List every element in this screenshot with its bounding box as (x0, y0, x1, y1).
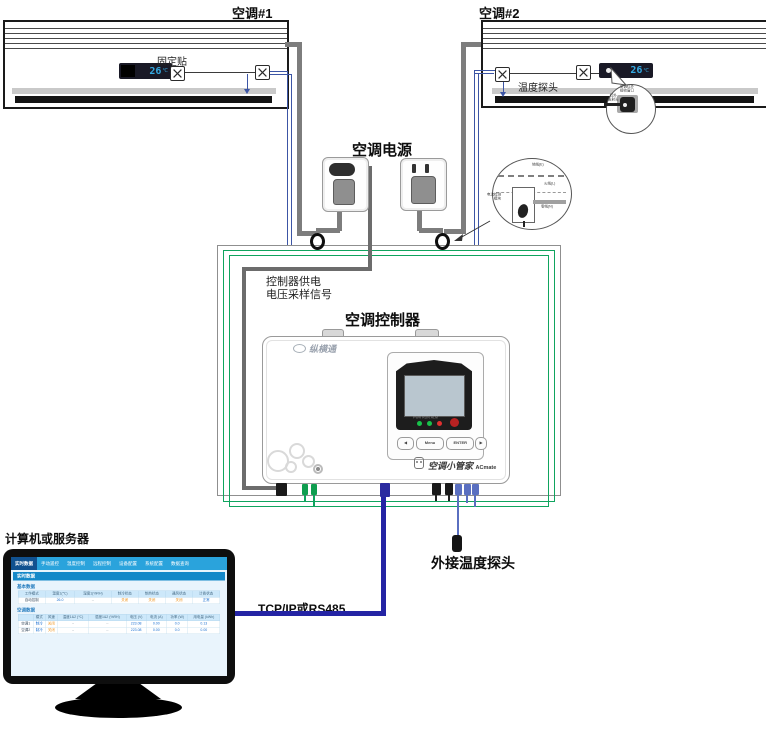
neutral-wire-label: 零线(N) (541, 205, 553, 209)
basic-data-title: 基本数据 (17, 583, 227, 590)
vent-line (483, 28, 766, 29)
monitor-tab[interactable]: 实时数据 (11, 557, 37, 570)
ext-probe-label: 外接温度探头 (431, 553, 515, 573)
ext-probe-wire (457, 495, 459, 535)
pin-comm-blue (380, 483, 390, 497)
vent-line (483, 48, 766, 49)
plug-right-cable (419, 228, 443, 233)
table-cell: -- (75, 597, 112, 604)
ac1-louver-dark (15, 96, 272, 103)
monitor-tab[interactable]: 数据查询 (167, 557, 193, 570)
cable-clip-icon (576, 65, 591, 80)
supply-label-line1: 控制器供电 (266, 276, 321, 288)
table-cell: 关闭 (111, 597, 138, 604)
vent-line (483, 43, 766, 44)
cable-clip-icon (255, 65, 270, 80)
table-cell: 关闭 (45, 627, 57, 634)
led-alarm (437, 421, 442, 426)
ct-ring-right (435, 233, 450, 250)
led-label-pwr: PWR (413, 416, 421, 420)
product-name-en: ACmate (476, 465, 497, 471)
controller-supply-cable (242, 267, 372, 271)
ir-callout-side-label-1: 红外 (610, 94, 617, 98)
led-run (427, 421, 432, 426)
table-cell: 关闭 (138, 597, 165, 604)
table-cell: 制冷 (33, 627, 45, 634)
pin-sensor-blue (472, 484, 479, 495)
menu-button[interactable]: Menu (416, 437, 444, 450)
table-cell: 26.0 (45, 597, 74, 604)
ac-data-table: 模式风速温度1&2 (℃)湿度1&2 (%RH)电压 (V)电流 (A)功率 (… (18, 614, 220, 634)
basic-data-table: 工作模式温度1(℃)湿度1(%RH)制冷状态制热状态通风状态计费状态自动控制26… (18, 591, 220, 605)
diagram-canvas: 空调#1 26 ℃ 固定贴 空调#2 温度探头 26 ℃ (0, 0, 766, 731)
down-arrow-icon (500, 92, 506, 97)
cable-clip-icon (495, 67, 510, 82)
table-cell: 正常 (193, 597, 220, 604)
pin-stub (448, 495, 450, 501)
speaker-dot (316, 467, 320, 471)
monitor-tab[interactable]: 手动遥控 (37, 557, 63, 570)
monitor-screen: 实时数据手动遥控温度控制远程控制设备配置系统配置数据查询 实时数据 基本数据 工… (11, 557, 227, 676)
socket-slot (412, 164, 416, 173)
ct-ring-left (310, 233, 325, 250)
current-module-label-2: 模块 (494, 197, 501, 201)
ir-receiver-dot (450, 418, 459, 427)
vent-line (5, 48, 287, 49)
brand-name: 纵横通 (309, 342, 336, 355)
enter-button[interactable]: ENTER (446, 437, 474, 450)
table-cell: 空调2 (18, 627, 33, 634)
ground-wire (498, 175, 564, 177)
vent-line (5, 33, 287, 34)
monitor-tab[interactable]: 温度控制 (63, 557, 89, 570)
ac1-louver-light (12, 88, 276, 94)
pin-sensor-blue (464, 484, 471, 495)
vent-line (5, 28, 287, 29)
pin-stub (466, 495, 468, 503)
ir-emitter-lens (623, 103, 627, 107)
probe-drop-wire (247, 74, 248, 89)
monitor-tabs: 实时数据手动遥控温度控制远程控制设备配置系统配置数据查询 (11, 557, 227, 570)
table-row: 空调2制冷关闭----223.080.000.00.00 (18, 627, 220, 634)
speaker-hole (285, 461, 297, 473)
right-arrow-button[interactable]: ▶ (475, 437, 487, 450)
pin-stub (474, 495, 476, 507)
plug-right (411, 176, 436, 204)
live-wire-label: 火线(L) (544, 182, 555, 186)
pin-stub (304, 495, 306, 502)
pin-stub (313, 495, 315, 506)
controller-title: 空调控制器 (345, 309, 420, 330)
socket-slot (425, 164, 429, 173)
neutral-wire (533, 200, 566, 204)
current-module-label-1: 电流检测 (487, 193, 501, 197)
ac2-temp-value: 26 (630, 65, 642, 76)
pin-ct-green (302, 484, 308, 495)
pin-black (445, 483, 453, 495)
table-cell: -- (89, 627, 126, 634)
acmate-mascot-icon (414, 457, 424, 469)
pin-power-black (276, 483, 287, 496)
tcpip-cable (228, 611, 386, 616)
ir-signal-wire (474, 73, 494, 74)
ct-wire-stub (523, 221, 525, 227)
computer-title: 计算机或服务器 (5, 530, 89, 547)
left-arrow-button[interactable]: ◀ (397, 437, 414, 450)
table-cell: 0.00 (146, 627, 166, 634)
ir-signal-wire (268, 74, 292, 75)
ac-data-title: 空调数据 (17, 607, 227, 614)
ac1-temp-unit: ℃ (162, 68, 168, 74)
led-power (417, 421, 422, 426)
plug-left (333, 179, 355, 205)
section-title: 实时数据 (13, 572, 225, 581)
table-row: 自动控制26.0--关闭关闭关闭正常 (18, 597, 220, 604)
led-label-alm: ALM (431, 416, 438, 420)
pin-black (432, 483, 441, 495)
ir-emitter-dot (606, 68, 611, 73)
plug-horizontal (329, 163, 355, 176)
vent-line (5, 38, 287, 39)
monitor-base (55, 697, 182, 718)
ground-wire-label: 地线(E) (532, 163, 544, 167)
led-label-run: RUN (422, 416, 430, 420)
monitor-tab[interactable]: 设备配置 (115, 557, 141, 570)
monitoring-software-ui: 实时数据手动遥控温度控制远程控制设备配置系统配置数据查询 实时数据 基本数据 工… (11, 557, 227, 676)
callout-arrow (450, 215, 495, 245)
ac1-power-cable (297, 42, 302, 236)
monitor-tab[interactable]: 远程控制 (89, 557, 115, 570)
ir-emitter-cable (604, 103, 620, 106)
tcpip-cable (381, 494, 386, 616)
ir-signal-wire (287, 71, 288, 245)
ext-temp-probe (452, 535, 462, 552)
table-cell: 0.0 (166, 627, 188, 634)
lcd-screen (404, 375, 465, 417)
supply-label-line2: 电压采样信号 (266, 289, 332, 301)
table-cell: 关闭 (165, 597, 192, 604)
ac2-temp-unit: ℃ (643, 68, 649, 74)
ir-callout-top-label-1: 空调红外 (620, 85, 634, 89)
cable-clip-icon (170, 66, 185, 81)
pin-sensor-blue (455, 484, 462, 495)
table-cell: 0.00 (188, 627, 220, 634)
ir-signal-wire (291, 74, 292, 245)
ir-signal-wire (268, 71, 288, 72)
brand-logo-icon (293, 344, 306, 353)
ir-callout-top-label-2: 接收窗口 (620, 89, 634, 93)
temp-probe-label: 温度探头 (518, 79, 558, 94)
table-cell: 自动控制 (18, 597, 45, 604)
controller-supply-cable (242, 267, 246, 490)
down-arrow-icon (244, 89, 250, 94)
ac1-display-window (121, 65, 135, 77)
vent-line (483, 38, 766, 39)
pin-ct-green (311, 484, 317, 495)
plug-left-cable (316, 228, 340, 233)
vent-line (483, 33, 766, 34)
pin-stub (435, 495, 437, 501)
ac2-power-cable (461, 42, 466, 234)
monitor-tab[interactable]: 系统配置 (141, 557, 167, 570)
product-name: 空调小管家 (428, 461, 473, 471)
table-cell: -- (57, 627, 88, 634)
vent-line (5, 43, 287, 44)
table-cell: 223.08 (126, 627, 146, 634)
ir-callout-side-label-2: 发射头 (608, 98, 619, 102)
